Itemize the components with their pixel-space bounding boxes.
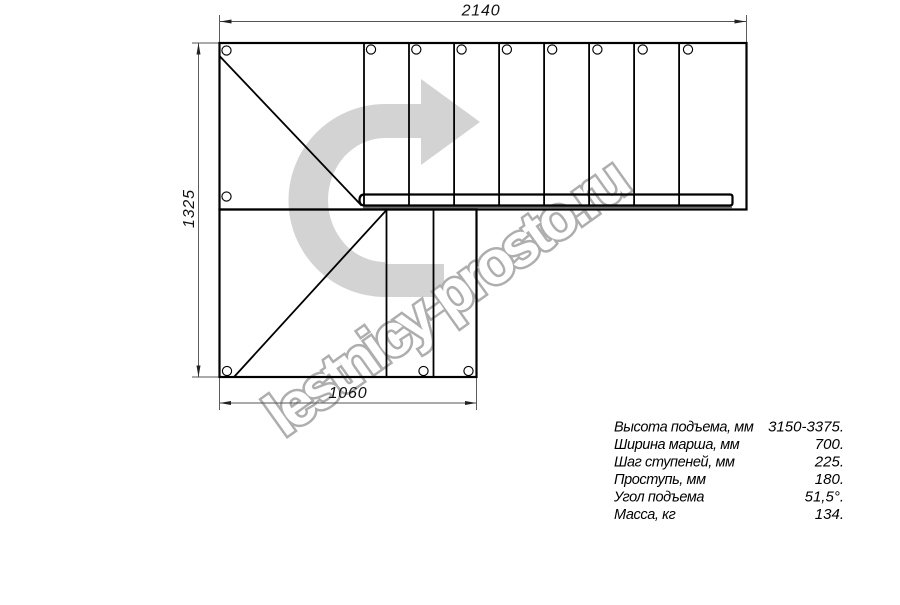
svg-text:Угол подъема: Угол подъема (613, 490, 704, 506)
svg-text:2140: 2140 (461, 3, 501, 20)
svg-text:134.: 134. (815, 506, 844, 523)
svg-text:Ширина марша, мм: Ширина марша, мм (614, 437, 740, 453)
svg-text:Высота подъема, мм: Высота подъема, мм (614, 420, 754, 436)
svg-text:180.: 180. (815, 471, 844, 488)
svg-text:1325: 1325 (181, 189, 198, 228)
svg-text:Шаг ступеней, мм: Шаг ступеней, мм (614, 455, 735, 471)
svg-text:700.: 700. (815, 436, 844, 453)
svg-text:Масса, кг: Масса, кг (614, 507, 676, 523)
svg-text:225.: 225. (814, 454, 844, 471)
svg-text:1060: 1060 (329, 385, 368, 402)
svg-text:Проступь, мм: Проступь, мм (614, 472, 706, 488)
svg-text:3150-3375.: 3150-3375. (768, 419, 844, 436)
svg-text:51,5°.: 51,5°. (805, 489, 844, 506)
